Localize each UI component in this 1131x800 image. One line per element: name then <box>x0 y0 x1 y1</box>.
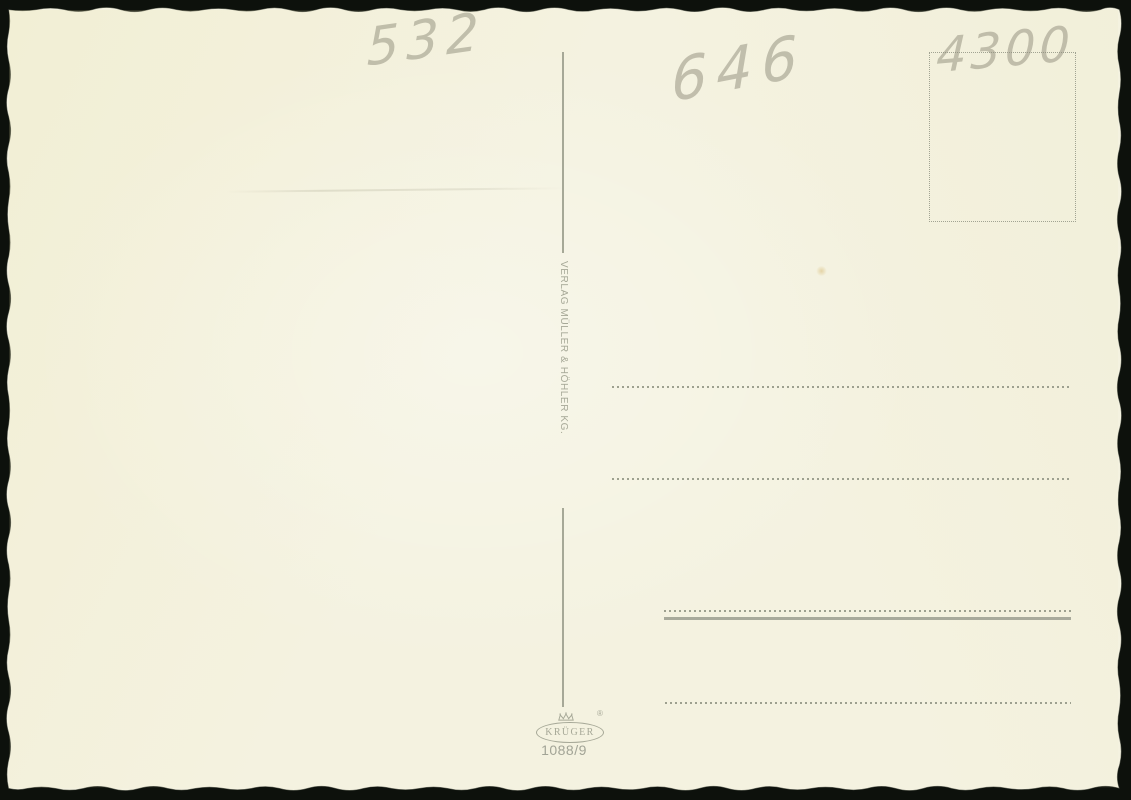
postcard-back: VERLAG MÜLLER & HÖHLER KG. 532 646 4300 … <box>0 0 1131 800</box>
divider-line-top <box>562 52 564 253</box>
publisher-imprint: VERLAG MÜLLER & HÖHLER KG. <box>554 261 572 451</box>
logo-brand-text: KRÜGER <box>545 727 595 738</box>
address-line-1 <box>612 386 1070 388</box>
crown-icon <box>557 712 575 721</box>
registered-mark-icon: ® <box>597 709 603 718</box>
krueger-logo: KRÜGER <box>536 722 604 743</box>
address-line-4 <box>665 702 1071 704</box>
address-underline-solid <box>664 617 1071 620</box>
address-line-2 <box>612 478 1071 480</box>
address-line-3 <box>664 610 1071 612</box>
card-series-number: 1088/9 <box>518 742 610 758</box>
divider-line-bottom <box>562 508 564 707</box>
foxing-spot <box>816 266 827 276</box>
